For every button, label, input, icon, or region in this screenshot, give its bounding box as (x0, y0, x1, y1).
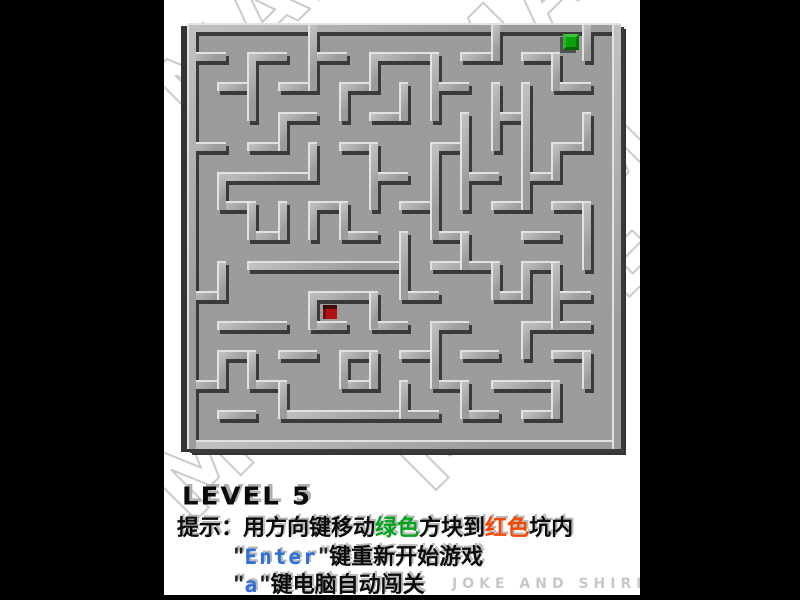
maze-wall (491, 380, 561, 389)
maze-wall (339, 350, 348, 389)
maze-wall (369, 350, 378, 389)
maze-wall (460, 350, 499, 359)
maze-wall (247, 52, 256, 121)
green-block[interactable] (563, 34, 579, 50)
maze-wall (217, 172, 317, 181)
maze-wall (369, 52, 378, 91)
maze-wall (551, 380, 560, 419)
restart-line-segment: Enter (244, 545, 317, 569)
hint-line-segment: 坑内 (529, 516, 573, 541)
maze-wall (308, 201, 317, 240)
maze-wall (551, 142, 560, 181)
maze-wall (278, 380, 287, 419)
maze-wall (187, 440, 622, 449)
maze-wall (399, 380, 408, 419)
autoplay-line: "a"键电脑自动闯关 (233, 567, 425, 595)
maze-wall (612, 23, 621, 449)
maze-wall (308, 291, 317, 330)
maze-wall (582, 201, 591, 270)
hint-line-segment: 方块到 (419, 516, 485, 541)
maze-wall (399, 82, 408, 121)
game-window: MAZEMAZEMAZEMAZEMAZE LEVEL 5 提示：用方向键移动绿色… (0, 0, 800, 600)
maze-wall (339, 201, 348, 240)
maze-wall (521, 82, 530, 210)
game-canvas[interactable]: MAZEMAZEMAZEMAZEMAZE LEVEL 5 提示：用方向键移动绿色… (164, 0, 640, 595)
maze-wall (187, 23, 196, 449)
maze-wall (278, 112, 287, 151)
maze-wall (217, 172, 226, 211)
red-pit (323, 305, 337, 319)
level-label: LEVEL 5 (182, 483, 312, 512)
maze-wall (369, 291, 378, 330)
maze-wall (582, 350, 591, 389)
maze-wall (217, 410, 256, 419)
maze-wall (308, 291, 378, 300)
maze-wall (460, 112, 469, 210)
maze-wall (369, 142, 378, 211)
hint-line-segment: 红色 (485, 516, 529, 541)
autoplay-line-segment: 键电脑自动闯关 (271, 573, 425, 595)
maze-wall (217, 321, 287, 330)
maze-wall (430, 52, 439, 121)
maze-wall (247, 201, 256, 240)
credit-text: JOKE AND SHIRLEY (452, 576, 640, 592)
autoplay-line-segment: " (233, 573, 244, 595)
maze-wall (521, 231, 560, 240)
maze-wall (278, 201, 287, 240)
maze-wall (339, 82, 348, 121)
maze-wall (430, 142, 439, 240)
maze-wall (551, 261, 560, 330)
maze-wall (460, 231, 469, 270)
right-black-panel (640, 0, 800, 600)
maze-wall (308, 23, 317, 92)
maze-wall (217, 350, 226, 389)
hint-line: 提示：用方向键移动绿色方块到红色坑内 (177, 510, 573, 542)
maze-wall (247, 350, 256, 389)
maze-wall (399, 231, 408, 300)
maze-wall (278, 410, 439, 419)
maze-wall (491, 261, 500, 300)
maze-wall (551, 52, 560, 91)
maze-wall (460, 380, 469, 419)
hint-line-segment: 提示：用方向键移动 (177, 516, 375, 541)
autoplay-line-segment: " (259, 573, 270, 595)
left-black-panel (0, 0, 164, 600)
hint-line-segment: 绿色 (375, 516, 419, 541)
maze-wall (521, 321, 530, 360)
maze-wall (369, 52, 439, 61)
maze-wall (430, 321, 439, 390)
maze-wall (582, 23, 591, 62)
autoplay-line-segment: a (244, 573, 259, 595)
maze-wall (217, 261, 226, 300)
maze-wall (247, 261, 408, 270)
maze-wall (308, 142, 317, 181)
maze-wall (187, 23, 622, 32)
maze-wall (491, 23, 500, 62)
maze-wall (278, 350, 317, 359)
maze-wall (582, 112, 591, 151)
maze-wall (491, 82, 500, 151)
maze-wall (521, 261, 530, 300)
